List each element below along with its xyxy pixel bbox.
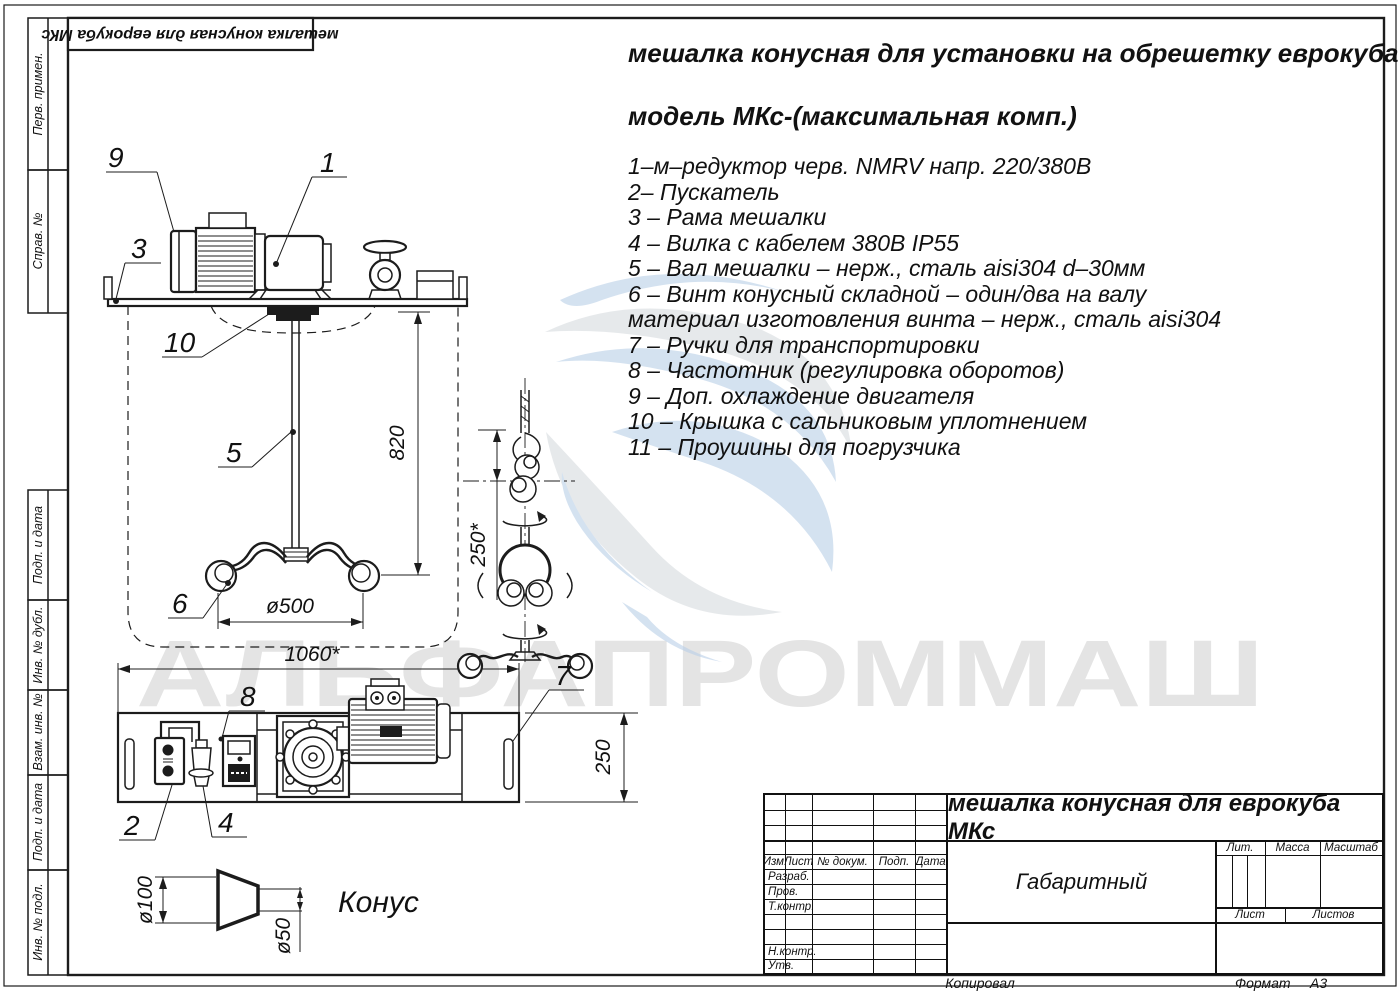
parts-list-item: 5 – Вал мешалки – нерж., сталь aisi304 d… xyxy=(628,256,1221,282)
tb-list: Лист xyxy=(1215,907,1285,922)
callout-3: 3 xyxy=(131,233,147,264)
watermark-text: АЛЬФАПРОММАШ xyxy=(136,621,1264,727)
callout-9: 9 xyxy=(108,142,124,173)
parts-list-item: 7 – Ручки для транспортировки xyxy=(628,333,1221,359)
tb-row-utv: Утв. xyxy=(765,959,815,973)
callout-10: 10 xyxy=(164,327,196,358)
strip-label-podp-data-1: Подп. и дата xyxy=(31,506,45,584)
dim-d500: ø500 xyxy=(266,595,314,618)
cone-detail: ø100 ø50 Конус xyxy=(134,871,419,954)
callout-5: 5 xyxy=(226,437,242,468)
parts-list-item: 6 – Винт конусный складной – один/два на… xyxy=(628,282,1221,308)
callout-2: 2 xyxy=(123,810,140,841)
callout-4: 4 xyxy=(218,807,234,838)
tb-row-razrab: Разраб. xyxy=(765,869,815,884)
parts-list-item: 3 – Рама мешалки xyxy=(628,205,1221,231)
parts-list-item: 4 – Вилка с кабелем 380В IP55 xyxy=(628,231,1221,257)
parts-list-item: 11 – Проушины для погрузчика xyxy=(628,435,1221,461)
title-block-drawing-kind: Габаритный xyxy=(948,842,1215,922)
tb-row-nkontr: Н.контр. xyxy=(765,944,815,959)
tb-massa: Масса xyxy=(1265,840,1320,855)
title-block-product-title: мешалка конусная для еврокуба МКс xyxy=(948,795,1382,840)
footer-format-value: А3 xyxy=(1310,975,1327,991)
strip-label-inv-dubl: Инв. № дубл. xyxy=(31,607,45,684)
callout-1: 1 xyxy=(320,147,336,178)
tb-masshtab: Масштаб xyxy=(1320,840,1382,855)
top-stamp-text: мешалка конусная для еврокуба МКс xyxy=(41,26,338,43)
parts-list-item: 1–м–редуктор черв. NMRV напр. 220/380В xyxy=(628,154,1221,180)
callout-6: 6 xyxy=(172,588,188,619)
callout-7: 7 xyxy=(555,660,572,691)
parts-list-item: 9 – Доп. охлаждение двигателя xyxy=(628,384,1221,410)
callout-8: 8 xyxy=(240,681,256,712)
left-strip: Перв. примен. Справ. № Подп. и дата Инв.… xyxy=(28,18,68,975)
drawing-title: мешалка конусная для установки на обреше… xyxy=(628,38,1399,69)
tb-lit: Лит. xyxy=(1215,840,1265,855)
tb-col-izm: Изм. xyxy=(765,854,785,869)
dim-d100: ø100 xyxy=(134,876,157,924)
tb-col-data: Дата xyxy=(915,854,946,869)
parts-list-item: 10 – Крышка с сальниковым уплотнением xyxy=(628,409,1221,435)
strip-label-inv-podl: Инв. № подл. xyxy=(31,883,45,961)
parts-list-item: 8 – Частотник (регулировка оборотов) xyxy=(628,358,1221,384)
tb-row-prov: Пров. xyxy=(765,884,815,899)
parts-list-item: 2– Пускатель xyxy=(628,180,1221,206)
tb-col-docnum: № докум. xyxy=(812,854,873,869)
tb-col-podp: Подп. xyxy=(873,854,915,869)
cone-caption: Конус xyxy=(338,886,419,919)
dim-820: 820 xyxy=(386,425,409,460)
front-view xyxy=(104,213,467,647)
title-block: мешалка конусная для еврокуба МКс Габари… xyxy=(763,793,1384,975)
tb-listov: Листов xyxy=(1285,907,1382,922)
dim-d50: ø50 xyxy=(272,918,295,955)
parts-list-item: материал изготовления винта – нерж., ста… xyxy=(628,307,1221,333)
tb-col-list: Лист xyxy=(785,854,812,869)
strip-label-podp-data-2: Подп. и дата xyxy=(31,783,45,861)
footer-kopiroval: Копировал xyxy=(900,975,1060,991)
dim-250-depth: 250 xyxy=(592,739,615,775)
dim-1060: 1060* xyxy=(285,643,341,666)
dim-250-folded: 250* xyxy=(467,523,490,568)
strip-label-sprav-no: Справ. № xyxy=(31,212,45,269)
top-stamp-box: мешалка конусная для еврокуба МКс xyxy=(41,18,338,50)
parts-list: 1–м–редуктор черв. NMRV напр. 220/380В 2… xyxy=(628,154,1221,460)
strip-label-vzam-inv: Взам. инв. № xyxy=(31,693,45,771)
tb-row-tkontr: Т.контр. xyxy=(765,899,815,914)
drawing-model: модель МКс-(максимальная комп.) xyxy=(628,101,1077,132)
drawing-sheet: АЛЬФАПРОММАШ мешалка конусная для евроку… xyxy=(0,0,1400,991)
footer-format-label: Формат xyxy=(1235,975,1291,991)
strip-label-perv-primen: Перв. примен. xyxy=(31,52,45,135)
